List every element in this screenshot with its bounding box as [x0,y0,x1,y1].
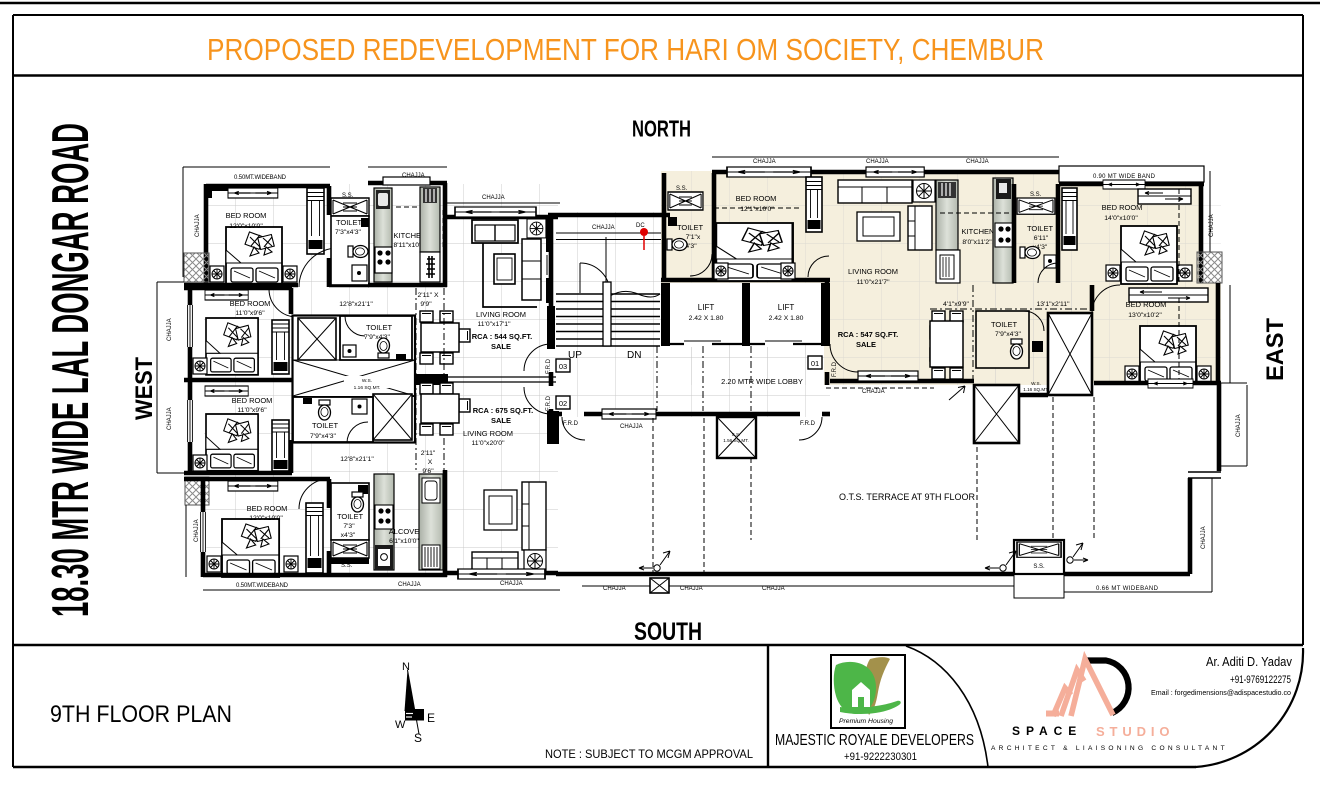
svg-text:BED ROOM: BED ROOM [226,211,267,220]
svg-text:E: E [427,711,435,725]
svg-text:1.16 SQ.MT.: 1.16 SQ.MT. [1023,387,1049,392]
svg-text:0.50MT.WIDEBAND: 0.50MT.WIDEBAND [236,583,289,589]
svg-text:12'1"x10'0": 12'1"x10'0" [740,206,774,213]
svg-text:CHAJJA: CHAJJA [167,407,173,430]
svg-text:8'0"x11'2": 8'0"x11'2" [962,239,992,246]
svg-text:RCA : 547 SQ.FT.: RCA : 547 SQ.FT. [838,330,899,339]
svg-text:7'3": 7'3" [343,523,355,530]
svg-text:Ar. Aditi D. Yadav: Ar. Aditi D. Yadav [1206,654,1292,669]
svg-text:RCA : 544 SQ.FT.: RCA : 544 SQ.FT. [472,332,533,341]
svg-text:14'0"x10'0": 14'0"x10'0" [1104,215,1138,222]
svg-text:CHAJJA: CHAJJA [194,519,200,542]
svg-text:EAST: EAST [1262,318,1289,381]
svg-text:TOILET: TOILET [991,320,1018,329]
svg-text:CHAJJA: CHAJJA [603,586,626,592]
svg-text:CHAJJA: CHAJJA [1201,526,1207,549]
svg-text:12'8"x21'1": 12'8"x21'1" [339,301,373,308]
svg-text:N: N [402,661,410,673]
svg-text:KITCHEN: KITCHEN [962,227,995,236]
svg-text:Premium Housing: Premium Housing [839,718,893,725]
svg-text:11'0"x20'0": 11'0"x20'0" [472,440,506,447]
svg-text:LIVING ROOM: LIVING ROOM [848,267,898,276]
svg-text:TOILET: TOILET [312,421,339,430]
svg-text:CHAJJA: CHAJJA [966,159,989,165]
svg-text:2.20 MTR WIDE LOBBY: 2.20 MTR WIDE LOBBY [721,377,803,386]
svg-text:TOILET: TOILET [366,323,393,332]
svg-text:LIVING ROOM: LIVING ROOM [476,310,526,319]
svg-text:TOILET: TOILET [336,218,363,227]
svg-text:F.R.D: F.R.D [563,421,579,427]
svg-text:1.56 SQ.MT.: 1.56 SQ.MT. [723,438,749,443]
svg-text:F.R.D: F.R.D [546,358,552,374]
svg-text:DN: DN [627,350,641,361]
svg-text:12'8"x21'1": 12'8"x21'1" [340,456,374,463]
svg-text:NORTH: NORTH [632,116,691,142]
svg-text:+91-9222230301: +91-9222230301 [844,751,917,763]
svg-text:7'1"x: 7'1"x [686,234,701,241]
svg-text:7'3"x4'3": 7'3"x4'3" [335,229,362,236]
svg-text:03: 03 [559,362,567,371]
svg-text:NOTE : SUBJECT TO MCGM APPROVA: NOTE : SUBJECT TO MCGM APPROVAL [545,747,753,761]
svg-text:ARCHITECT & LIAISONING CONSULT: ARCHITECT & LIAISONING CONSULTANT [991,745,1227,752]
svg-text:PROPOSED REDEVELOPMENT FOR HAR: PROPOSED REDEVELOPMENT FOR HARI OM SOCIE… [207,32,1044,67]
svg-text:ALCOVE: ALCOVE [389,527,419,536]
svg-text:CHAJJA: CHAJJA [620,424,643,430]
svg-text:12'0"x10'0": 12'0"x10'0" [249,515,283,522]
svg-text:WEST: WEST [131,357,158,420]
svg-text:W.S.: W.S. [362,378,372,384]
svg-text:13'0"x10'2": 13'0"x10'2" [1128,312,1162,319]
svg-text:CHAJJA: CHAJJA [195,214,201,237]
svg-text:CHAJJA: CHAJJA [866,159,889,165]
svg-text:F.R.D: F.R.D [546,395,552,411]
svg-text:SOUTH: SOUTH [634,618,702,646]
svg-text:RCA : 675 SQ.FT.: RCA : 675 SQ.FT. [473,406,534,415]
svg-text:CHAJJA: CHAJJA [482,195,505,201]
svg-text:CHAJJA: CHAJJA [762,586,785,592]
svg-text:CHAJJA: CHAJJA [680,586,703,592]
svg-text:S.S.: S.S. [676,186,688,192]
svg-text:S.S.: S.S. [1033,564,1045,570]
svg-text:CHAJJA: CHAJJA [592,225,615,231]
svg-text:CHAJJA: CHAJJA [1236,414,1242,437]
svg-text:SALE: SALE [856,340,876,349]
svg-text:2'11": 2'11" [421,450,436,457]
svg-text:MAJESTIC ROYALE DEVELOPERS: MAJESTIC ROYALE DEVELOPERS [775,732,974,749]
svg-text:CHAJJA: CHAJJA [398,582,421,588]
svg-text:SALE: SALE [491,416,511,425]
svg-text:BED ROOM: BED ROOM [736,194,777,203]
svg-text:STUDIO: STUDIO [1096,724,1174,739]
svg-text:S.S.: S.S. [732,432,741,437]
svg-text:2.42 X 1.80: 2.42 X 1.80 [769,315,804,322]
svg-text:11'0"x21'7": 11'0"x21'7" [857,279,891,286]
svg-text:7'9"x4'3": 7'9"x4'3" [995,331,1022,338]
svg-text:6'1"x10'0": 6'1"x10'0" [389,538,419,545]
svg-text:0.90 MT WIDE BAND: 0.90 MT WIDE BAND [1093,174,1156,180]
svg-text:F.R.D: F.R.D [800,421,816,427]
svg-text:7'9"x4'3": 7'9"x4'3" [310,433,337,440]
svg-text:BED ROOM: BED ROOM [232,396,273,405]
svg-text:CHAJJA: CHAJJA [753,159,776,165]
svg-text:1.16 SQ.MT.: 1.16 SQ.MT. [354,385,381,391]
svg-text:02: 02 [559,399,567,408]
svg-text:F.R.D: F.R.D [832,361,838,377]
svg-text:W: W [395,719,406,731]
svg-text:13'1"x2'11": 13'1"x2'11" [1037,301,1071,308]
svg-text:BED ROOM: BED ROOM [230,299,271,308]
svg-text:TOILET: TOILET [1027,224,1054,233]
svg-text:Email : forgedimensions@adispa: Email : forgedimensions@adispacestudio.c… [1151,688,1291,697]
svg-text:11'0"x17'1": 11'0"x17'1" [478,321,512,328]
svg-text:SPACE: SPACE [1012,724,1082,738]
svg-text:18.30 MTR WIDE LAL DONGAR ROAD: 18.30 MTR WIDE LAL DONGAR ROAD [42,123,100,617]
svg-text:11'0"x9'6": 11'0"x9'6" [237,407,267,414]
svg-text:2.42 X 1.80: 2.42 X 1.80 [689,315,724,322]
svg-text:01: 01 [811,359,819,368]
svg-text:W.S.: W.S. [1031,381,1041,386]
svg-text:LIVING ROOM: LIVING ROOM [463,429,513,438]
svg-text:4'1"x9'9": 4'1"x9'9" [943,301,970,308]
svg-text:CHAJJA: CHAJJA [167,318,173,341]
svg-text:CHAJJA: CHAJJA [500,581,523,587]
svg-text:S.S.: S.S. [1030,192,1042,198]
svg-text:LIFT: LIFT [698,303,715,312]
svg-text:0.50MT.WIDEBAND: 0.50MT.WIDEBAND [234,175,287,181]
svg-text:6'11": 6'11" [1034,235,1049,242]
svg-text:BED ROOM: BED ROOM [1102,203,1143,212]
svg-text:TOILET: TOILET [337,512,364,521]
svg-text:X: X [428,459,433,466]
svg-text:O.T.S. TERRACE AT 9TH FLOOR: O.T.S. TERRACE AT 9TH FLOOR [839,492,976,502]
svg-text:x4'3": x4'3" [341,532,356,539]
svg-text:0.66 MT WIDEBAND: 0.66 MT WIDEBAND [1096,586,1159,592]
svg-text:LIFT: LIFT [778,303,795,312]
svg-text:CHAJJA: CHAJJA [862,389,885,395]
svg-text:2'11" X: 2'11" X [418,292,439,299]
svg-text:+91-9769122275: +91-9769122275 [1230,674,1291,686]
svg-text:9'9": 9'9" [420,301,432,308]
svg-text:11'0"x9'6": 11'0"x9'6" [235,310,265,317]
svg-text:TOILET: TOILET [677,223,704,232]
svg-text:SALE: SALE [491,342,511,351]
svg-text:BED ROOM: BED ROOM [247,504,288,513]
svg-text:S: S [414,731,422,745]
svg-text:9TH FLOOR PLAN: 9TH FLOOR PLAN [50,701,232,728]
svg-text:12'0"x10'0": 12'0"x10'0" [229,223,263,230]
svg-text:CHAJJA: CHAJJA [1209,214,1215,237]
